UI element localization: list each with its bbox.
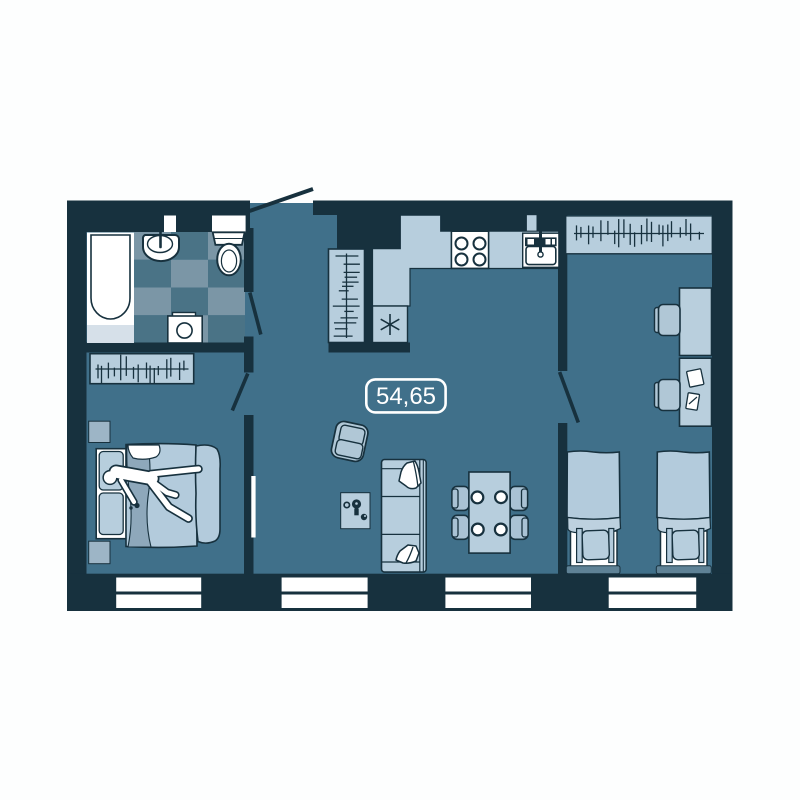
svg-text:54,65: 54,65 [376,383,436,410]
